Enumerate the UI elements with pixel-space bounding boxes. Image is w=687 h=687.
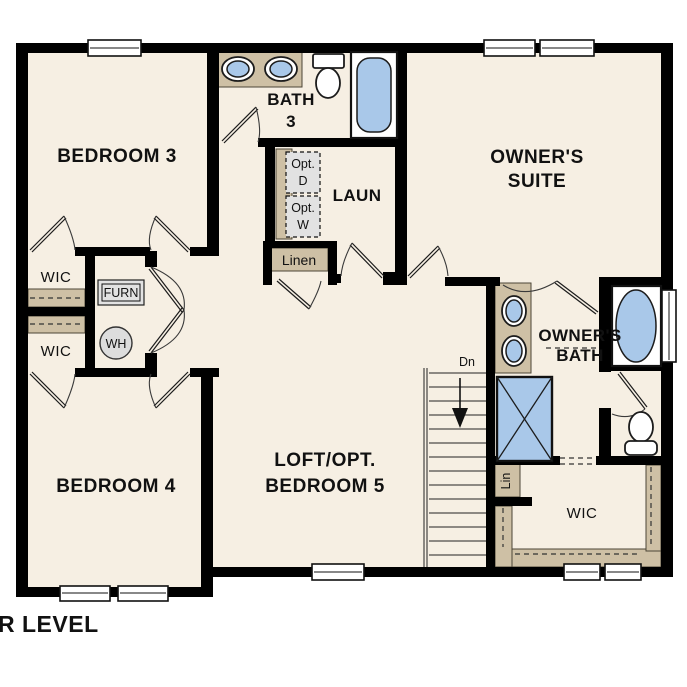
- lin-cubby-label: Lin: [499, 473, 513, 490]
- furnace: FURN: [98, 280, 144, 305]
- floor-plan-page: Dn Opt. D Opt. W: [0, 0, 687, 687]
- owners-wic-label: WIC: [567, 505, 598, 522]
- stairs-dn-label: Dn: [459, 355, 475, 369]
- bath3-tub: [351, 52, 397, 138]
- owners-bath-label-1: OWNER'S: [538, 326, 621, 345]
- opt-washer-label-2: W: [297, 218, 309, 232]
- window: [564, 564, 600, 580]
- water-heater: WH: [100, 327, 132, 359]
- bath3-label-1: BATH: [267, 90, 315, 109]
- owners-suite-label-1: OWNER'S: [490, 147, 584, 168]
- owners-wic-shelf-right: [646, 465, 661, 551]
- bedroom4-label: BEDROOM 4: [56, 476, 176, 497]
- window: [312, 564, 364, 580]
- optional-washer: Opt. W: [286, 196, 320, 237]
- bedroom3-label: BEDROOM 3: [57, 146, 177, 167]
- window: [662, 290, 676, 362]
- loft-label-2: BEDROOM 5: [265, 476, 385, 497]
- bath3-sink: [265, 57, 297, 81]
- loft-label-1: LOFT/OPT.: [274, 450, 376, 471]
- water-heater-label: WH: [106, 337, 127, 351]
- page-title: UPPER LEVEL: [0, 611, 99, 637]
- window: [605, 564, 641, 580]
- bath3-sink: [222, 57, 254, 81]
- furnace-label: FURN: [104, 286, 139, 300]
- wic-upper-left-label: WIC: [41, 269, 72, 286]
- window: [484, 40, 535, 56]
- owners-bath-label-2: BATH: [556, 346, 604, 365]
- floor-plan: Dn Opt. D Opt. W: [0, 0, 687, 687]
- optional-dryer: Opt. D: [286, 152, 320, 193]
- opt-washer-label-1: Opt.: [291, 201, 315, 215]
- bath3-label-2: 3: [286, 112, 296, 131]
- opt-dryer-label-1: Opt.: [291, 157, 315, 171]
- window: [540, 40, 594, 56]
- wic-lower-left-label: WIC: [41, 343, 72, 360]
- window: [118, 586, 168, 601]
- linen-label: Linen: [282, 252, 316, 268]
- window: [88, 40, 141, 56]
- opt-dryer-label-2: D: [298, 174, 307, 188]
- owners-bath-sink: [502, 336, 526, 366]
- shower: [497, 377, 552, 461]
- owners-bath-sink: [502, 296, 526, 326]
- owners-suite-label-2: SUITE: [508, 171, 566, 192]
- laundry-label: LAUN: [333, 186, 382, 205]
- window: [60, 586, 110, 601]
